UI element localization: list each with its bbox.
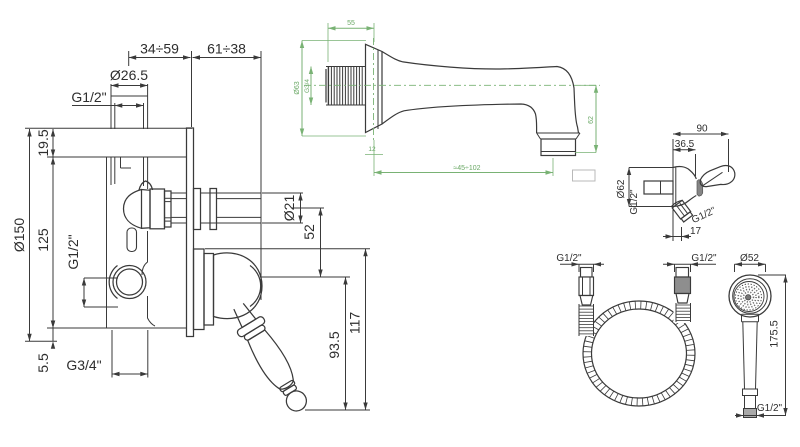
svg-text:≈45÷102: ≈45÷102 <box>453 165 480 172</box>
svg-text:Ø63: Ø63 <box>294 81 301 94</box>
svg-text:Ø62: Ø62 <box>616 179 627 198</box>
svg-text:G3/4: G3/4 <box>304 79 311 93</box>
svg-text:117: 117 <box>347 312 363 335</box>
svg-text:125: 125 <box>35 228 51 252</box>
svg-text:90: 90 <box>696 124 708 135</box>
svg-text:12: 12 <box>368 146 376 153</box>
svg-text:G1/2": G1/2" <box>71 89 106 105</box>
svg-text:Ø52: Ø52 <box>740 253 759 264</box>
svg-text:G3/4": G3/4" <box>66 357 101 373</box>
svg-text:19.5: 19.5 <box>35 129 51 156</box>
svg-text:36.5: 36.5 <box>675 139 695 150</box>
svg-text:55: 55 <box>347 20 355 27</box>
svg-text:G1/2": G1/2" <box>65 234 81 269</box>
svg-text:Ø150: Ø150 <box>11 218 27 252</box>
svg-text:52: 52 <box>301 224 317 240</box>
svg-text:175.5: 175.5 <box>769 320 781 348</box>
svg-text:34÷59: 34÷59 <box>140 41 179 57</box>
svg-text:G1/2": G1/2" <box>629 189 640 215</box>
svg-text:G1/2": G1/2" <box>757 403 783 414</box>
svg-text:93.5: 93.5 <box>326 331 342 358</box>
svg-text:17: 17 <box>690 226 702 237</box>
svg-text:G1/2": G1/2" <box>691 253 717 264</box>
svg-text:62: 62 <box>588 116 595 124</box>
svg-text:G1/2": G1/2" <box>556 253 582 264</box>
svg-text:61÷38: 61÷38 <box>207 41 246 57</box>
svg-text:5.5: 5.5 <box>35 353 51 373</box>
svg-text:Ø26.5: Ø26.5 <box>110 67 148 83</box>
